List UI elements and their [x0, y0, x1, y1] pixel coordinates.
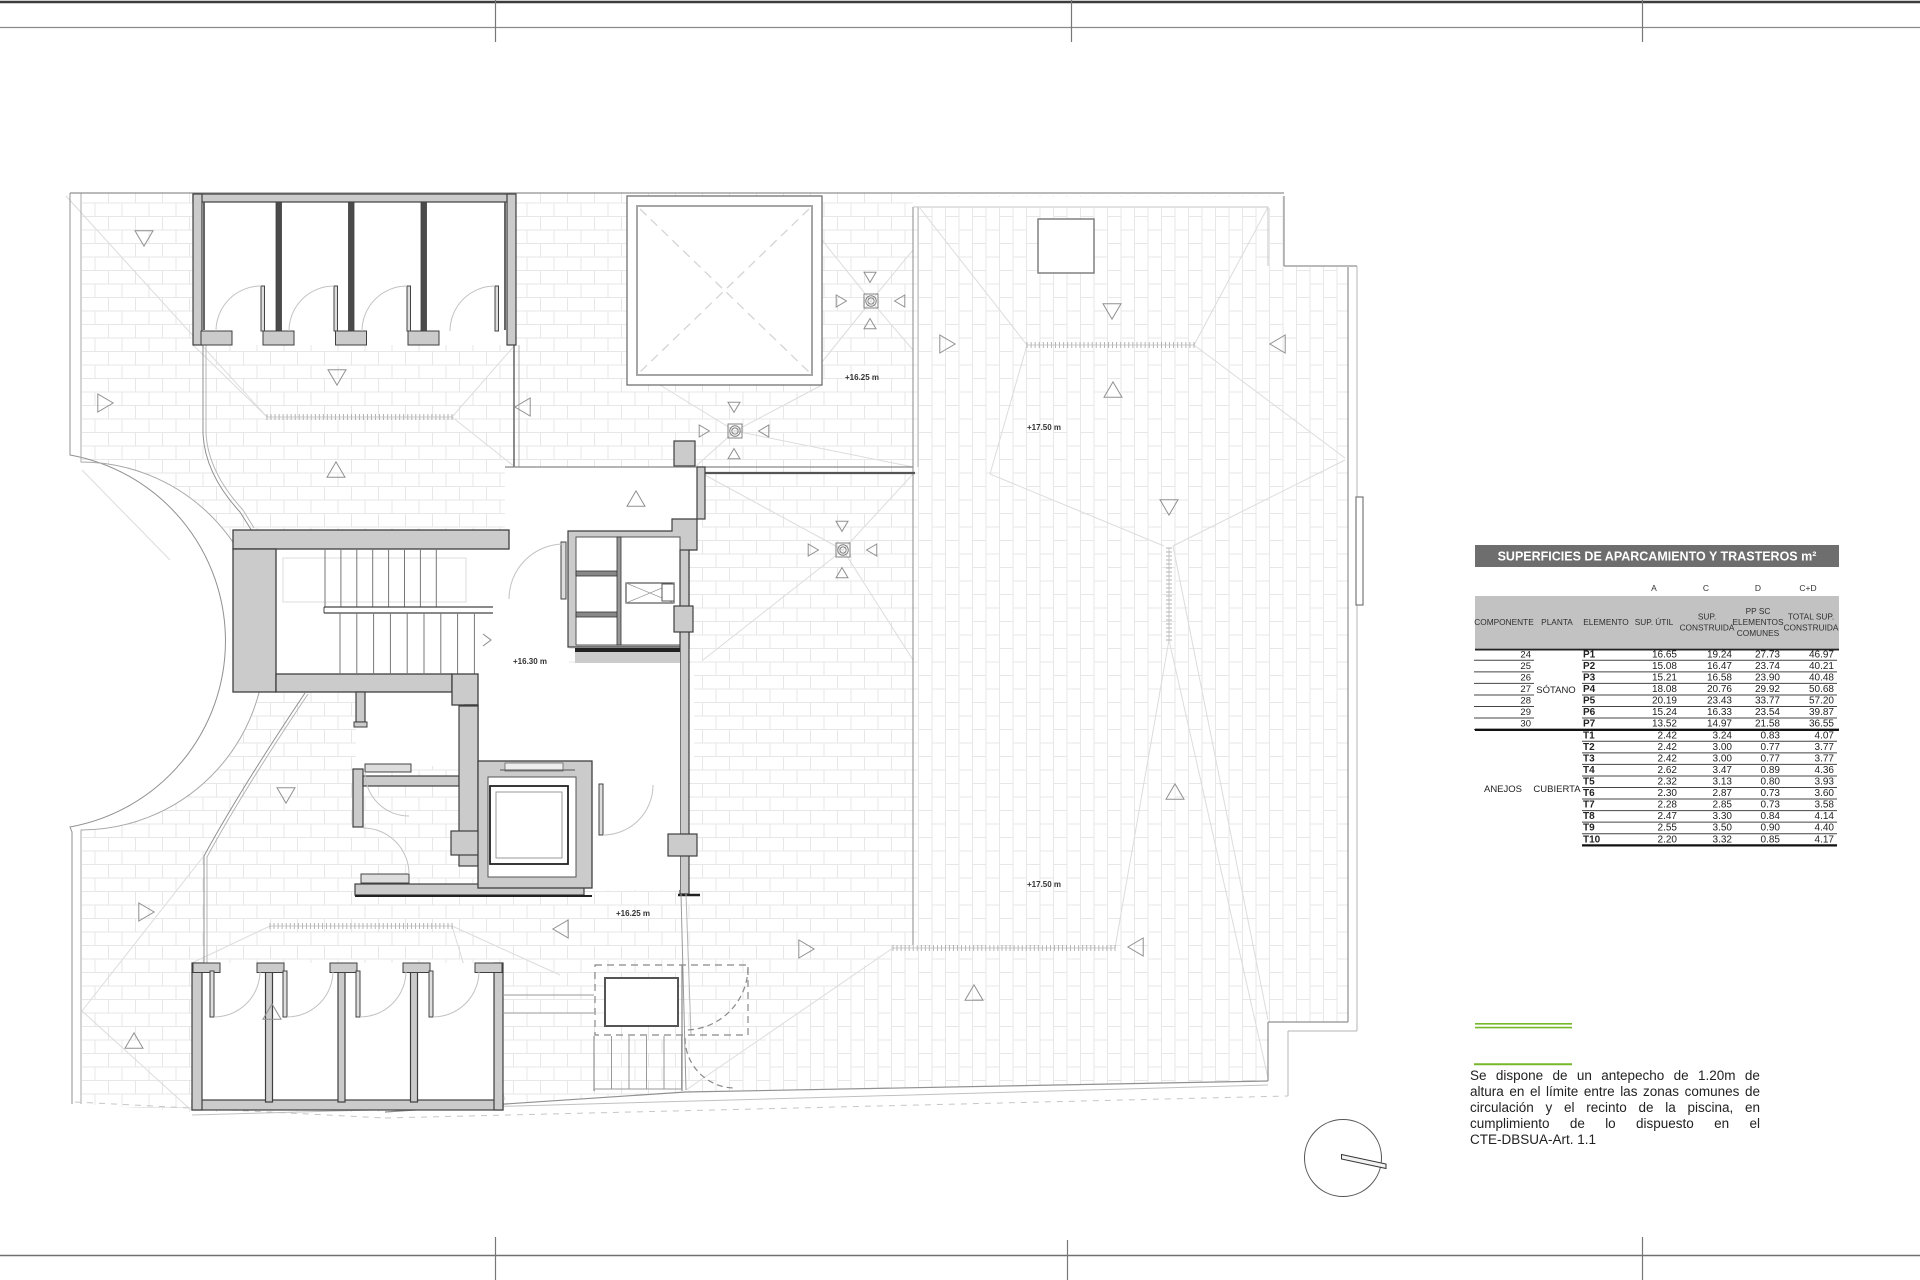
- svg-text:4.40: 4.40: [1815, 823, 1835, 834]
- svg-text:3.50: 3.50: [1713, 823, 1733, 834]
- svg-text:21.58: 21.58: [1755, 719, 1780, 730]
- svg-text:23.54: 23.54: [1755, 707, 1780, 718]
- svg-text:+17.50 m: +17.50 m: [1027, 880, 1061, 889]
- svg-text:T10: T10: [1583, 834, 1601, 845]
- svg-text:0.73: 0.73: [1761, 800, 1781, 811]
- svg-text:0.90: 0.90: [1761, 823, 1781, 834]
- svg-text:P2: P2: [1583, 661, 1596, 672]
- svg-text:P5: P5: [1583, 696, 1596, 707]
- svg-text:PP SC: PP SC: [1746, 606, 1771, 616]
- svg-text:4.36: 4.36: [1815, 765, 1835, 776]
- svg-text:16.47: 16.47: [1707, 661, 1732, 672]
- svg-text:2.55: 2.55: [1658, 823, 1678, 834]
- svg-text:23.74: 23.74: [1755, 661, 1780, 672]
- svg-text:SUP.: SUP.: [1698, 612, 1716, 622]
- svg-text:CONSTRUIDA: CONSTRUIDA: [1784, 623, 1839, 633]
- svg-text:T7: T7: [1583, 800, 1595, 811]
- svg-text:4.14: 4.14: [1815, 811, 1835, 822]
- svg-text:2.20: 2.20: [1658, 834, 1678, 845]
- svg-text:25: 25: [1520, 661, 1531, 672]
- svg-text:14.97: 14.97: [1707, 719, 1732, 730]
- svg-text:2.87: 2.87: [1713, 788, 1733, 799]
- svg-text:57.20: 57.20: [1809, 696, 1834, 707]
- svg-text:2.62: 2.62: [1658, 765, 1678, 776]
- svg-text:40.48: 40.48: [1809, 672, 1834, 683]
- svg-text:ANEJOS: ANEJOS: [1484, 784, 1522, 795]
- svg-text:46.97: 46.97: [1809, 649, 1834, 660]
- svg-text:15.24: 15.24: [1652, 707, 1677, 718]
- svg-text:0.73: 0.73: [1761, 788, 1781, 799]
- svg-text:39.87: 39.87: [1809, 707, 1834, 718]
- svg-text:18.08: 18.08: [1652, 684, 1677, 695]
- svg-text:15.21: 15.21: [1652, 672, 1677, 683]
- svg-text:3.77: 3.77: [1815, 742, 1835, 753]
- svg-text:+16.30 m: +16.30 m: [513, 657, 547, 666]
- svg-text:2.42: 2.42: [1658, 730, 1678, 741]
- svg-text:2.42: 2.42: [1658, 753, 1678, 764]
- svg-text:16.33: 16.33: [1707, 707, 1732, 718]
- svg-text:26: 26: [1520, 672, 1531, 683]
- svg-text:A: A: [1651, 583, 1657, 593]
- svg-text:2.42: 2.42: [1658, 742, 1678, 753]
- svg-text:0.89: 0.89: [1761, 765, 1781, 776]
- svg-text:3.13: 3.13: [1713, 777, 1733, 788]
- svg-text:27: 27: [1520, 684, 1531, 695]
- svg-text:COMPONENTE: COMPONENTE: [1474, 617, 1534, 627]
- svg-text:C+D: C+D: [1799, 583, 1816, 593]
- svg-text:27.73: 27.73: [1755, 649, 1780, 660]
- svg-text:P6: P6: [1583, 707, 1596, 718]
- svg-text:24: 24: [1520, 649, 1531, 660]
- svg-text:40.21: 40.21: [1809, 661, 1834, 672]
- svg-text:2.85: 2.85: [1713, 800, 1733, 811]
- svg-text:29: 29: [1520, 707, 1531, 718]
- svg-text:3.58: 3.58: [1815, 800, 1835, 811]
- svg-text:23.90: 23.90: [1755, 672, 1780, 683]
- svg-text:0.77: 0.77: [1761, 742, 1781, 753]
- svg-text:T8: T8: [1583, 811, 1595, 822]
- svg-text:CONSTRUIDA: CONSTRUIDA: [1680, 623, 1735, 633]
- svg-text:19.24: 19.24: [1707, 649, 1732, 660]
- svg-text:3.32: 3.32: [1713, 834, 1733, 845]
- svg-text:SÓTANO: SÓTANO: [1536, 685, 1575, 696]
- svg-text:+16.25 m: +16.25 m: [616, 909, 650, 918]
- svg-text:2.28: 2.28: [1658, 800, 1678, 811]
- svg-text:P7: P7: [1583, 719, 1596, 730]
- svg-text:D: D: [1755, 583, 1761, 593]
- svg-text:+17.50 m: +17.50 m: [1027, 423, 1061, 432]
- svg-text:2.47: 2.47: [1658, 811, 1678, 822]
- svg-text:T5: T5: [1583, 777, 1595, 788]
- svg-text:3.47: 3.47: [1713, 765, 1733, 776]
- svg-text:P4: P4: [1583, 684, 1596, 695]
- svg-text:P1: P1: [1583, 649, 1596, 660]
- svg-text:16.65: 16.65: [1652, 649, 1677, 660]
- svg-text:33.77: 33.77: [1755, 696, 1780, 707]
- svg-text:T2: T2: [1583, 742, 1595, 753]
- svg-text:T4: T4: [1583, 765, 1595, 776]
- svg-text:3.77: 3.77: [1815, 753, 1835, 764]
- svg-text:50.68: 50.68: [1809, 684, 1834, 695]
- svg-text:T6: T6: [1583, 788, 1595, 799]
- svg-text:0.85: 0.85: [1761, 834, 1781, 845]
- svg-text:30: 30: [1520, 719, 1531, 730]
- svg-text:13.52: 13.52: [1652, 719, 1677, 730]
- svg-text:3.93: 3.93: [1815, 777, 1835, 788]
- svg-text:28: 28: [1520, 696, 1531, 707]
- svg-text:TOTAL SUP.: TOTAL SUP.: [1788, 612, 1834, 622]
- svg-text:0.84: 0.84: [1761, 811, 1781, 822]
- svg-text:3.00: 3.00: [1713, 753, 1733, 764]
- svg-text:36.55: 36.55: [1809, 719, 1834, 730]
- svg-text:T3: T3: [1583, 753, 1595, 764]
- svg-text:29.92: 29.92: [1755, 684, 1780, 695]
- svg-text:ELEMENTOS: ELEMENTOS: [1732, 617, 1783, 627]
- svg-text:4.07: 4.07: [1815, 730, 1835, 741]
- svg-text:C: C: [1703, 583, 1709, 593]
- svg-text:16.58: 16.58: [1707, 672, 1732, 683]
- svg-text:4.17: 4.17: [1815, 834, 1835, 845]
- svg-text:+16.25 m: +16.25 m: [845, 373, 879, 382]
- svg-text:20.19: 20.19: [1652, 696, 1677, 707]
- svg-text:3.60: 3.60: [1815, 788, 1835, 799]
- svg-text:3.00: 3.00: [1713, 742, 1733, 753]
- svg-text:0.77: 0.77: [1761, 753, 1781, 764]
- svg-text:T1: T1: [1583, 730, 1595, 741]
- svg-text:SUPERFICIES DE APARCAMIENTO Y: SUPERFICIES DE APARCAMIENTO Y TRASTEROS …: [1498, 550, 1817, 564]
- svg-text:COMUNES: COMUNES: [1737, 628, 1780, 638]
- svg-text:ELEMENTO: ELEMENTO: [1583, 617, 1629, 627]
- svg-text:SUP. ÚTIL: SUP. ÚTIL: [1635, 617, 1674, 627]
- svg-text:15.08: 15.08: [1652, 661, 1677, 672]
- svg-text:2.30: 2.30: [1658, 788, 1678, 799]
- svg-text:20.76: 20.76: [1707, 684, 1732, 695]
- svg-text:PLANTA: PLANTA: [1541, 617, 1573, 627]
- svg-text:CUBIERTA: CUBIERTA: [1533, 784, 1581, 795]
- svg-text:T9: T9: [1583, 823, 1595, 834]
- svg-text:P3: P3: [1583, 672, 1596, 683]
- svg-text:23.43: 23.43: [1707, 696, 1732, 707]
- svg-text:0.80: 0.80: [1761, 777, 1781, 788]
- svg-text:3.24: 3.24: [1713, 730, 1733, 741]
- svg-text:3.30: 3.30: [1713, 811, 1733, 822]
- svg-text:0.83: 0.83: [1761, 730, 1781, 741]
- svg-text:2.32: 2.32: [1658, 777, 1678, 788]
